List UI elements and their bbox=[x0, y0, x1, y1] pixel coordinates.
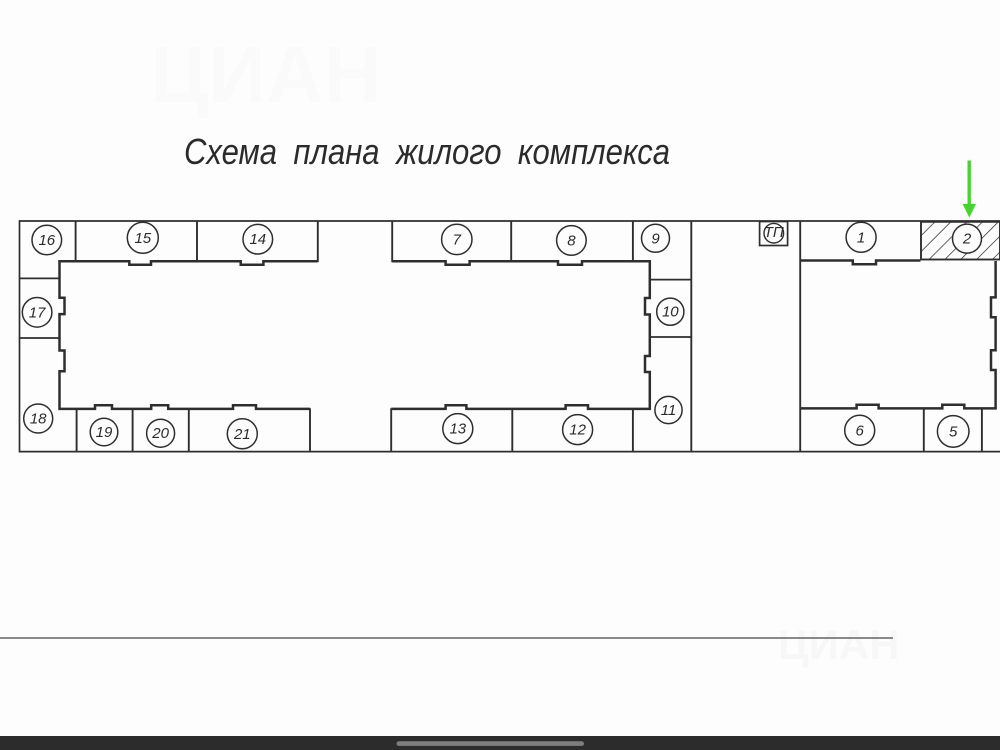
svg-text:10: 10 bbox=[662, 304, 679, 321]
svg-text:12: 12 bbox=[569, 422, 586, 439]
svg-text:1: 1 bbox=[857, 229, 865, 246]
svg-text:ЦИАН: ЦИАН bbox=[778, 621, 900, 668]
svg-text:15: 15 bbox=[134, 230, 151, 247]
svg-text:19: 19 bbox=[96, 424, 113, 441]
svg-text:2: 2 bbox=[962, 231, 972, 248]
svg-text:7: 7 bbox=[453, 231, 462, 248]
svg-text:21: 21 bbox=[233, 426, 251, 443]
svg-text:5: 5 bbox=[949, 423, 958, 440]
svg-text:17: 17 bbox=[29, 304, 46, 321]
svg-text:ТП: ТП bbox=[764, 224, 784, 241]
svg-text:11: 11 bbox=[661, 402, 677, 419]
svg-text:14: 14 bbox=[249, 231, 266, 248]
svg-text:ЦИАН: ЦИАН bbox=[150, 30, 381, 119]
svg-text:Схема плана жилого комплекса: Схема плана жилого комплекса bbox=[184, 131, 670, 172]
svg-text:20: 20 bbox=[151, 425, 169, 442]
svg-text:6: 6 bbox=[856, 422, 865, 439]
svg-text:9: 9 bbox=[651, 230, 660, 247]
svg-text:8: 8 bbox=[567, 232, 576, 249]
svg-text:13: 13 bbox=[449, 421, 466, 438]
svg-text:16: 16 bbox=[38, 232, 55, 249]
svg-text:18: 18 bbox=[30, 411, 47, 428]
